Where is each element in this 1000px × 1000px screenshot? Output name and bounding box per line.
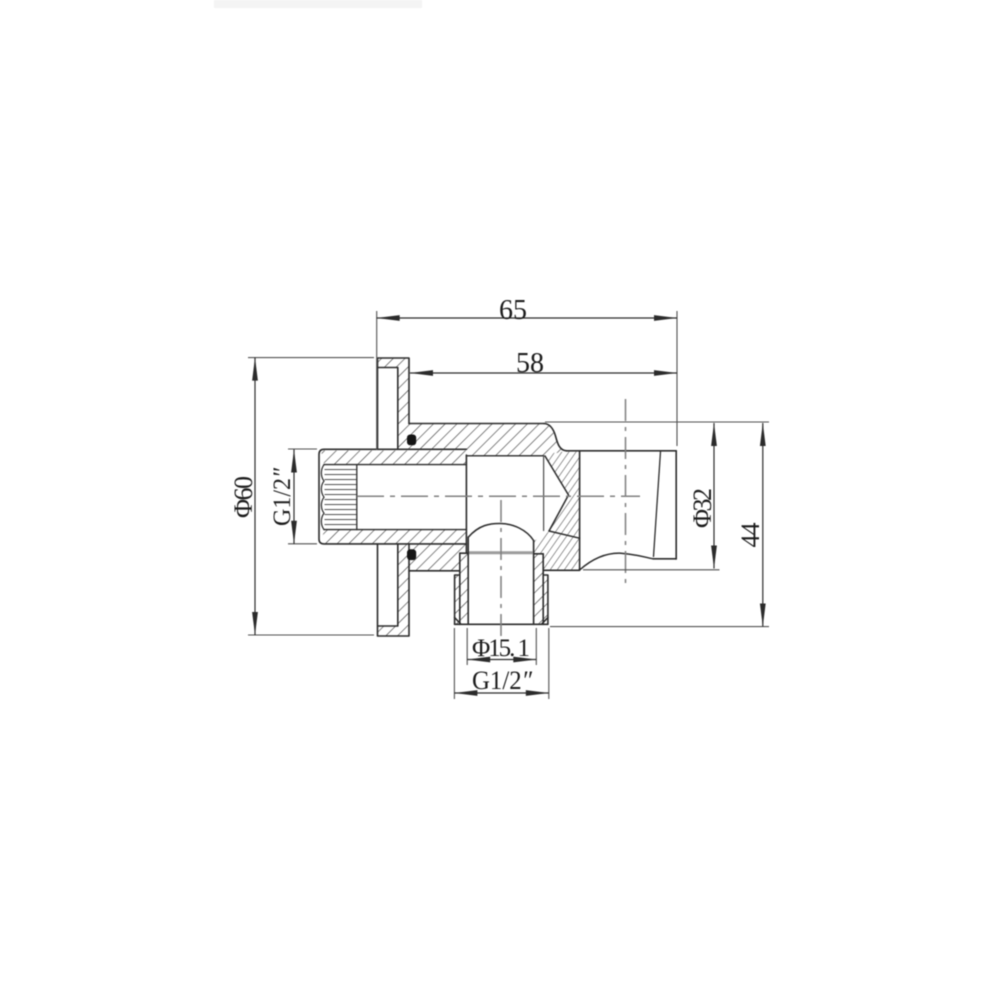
- svg-text:Φ15. 1: Φ15. 1: [472, 635, 530, 662]
- svg-text:58: 58: [516, 348, 544, 379]
- svg-text:Φ60: Φ60: [229, 476, 258, 518]
- svg-text:65: 65: [499, 295, 527, 326]
- svg-text:G1/2″: G1/2″: [269, 467, 296, 526]
- svg-text:G1/2″: G1/2″: [472, 666, 533, 695]
- svg-text:44: 44: [736, 523, 765, 548]
- svg-text:Φ32: Φ32: [688, 488, 717, 528]
